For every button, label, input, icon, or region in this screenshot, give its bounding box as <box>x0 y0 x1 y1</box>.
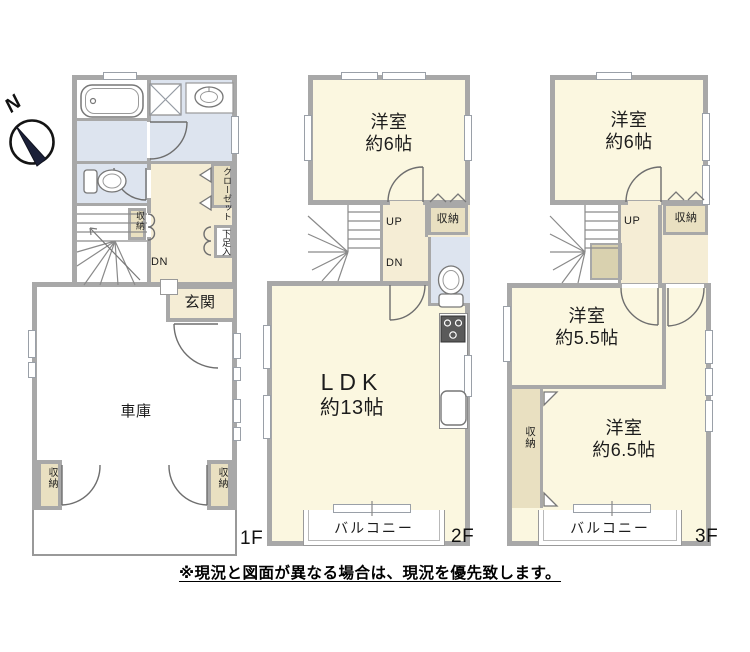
window <box>233 399 241 423</box>
wall-segment <box>77 118 151 121</box>
f3-room-mid-size: 約5.5帖 <box>527 328 647 350</box>
wall-segment <box>147 158 151 170</box>
disclaimer-text: ※現況と図面が異なる場合は、現況を優先致します。 <box>130 565 610 584</box>
wall-segment <box>77 203 151 206</box>
f2-balcony-label: バルコニー <box>314 520 434 537</box>
window <box>705 368 713 396</box>
f2-floor-label: 2F <box>451 525 474 548</box>
driveway-line <box>32 554 237 556</box>
f1-garage-label: 車庫 <box>96 403 176 421</box>
window <box>573 504 651 513</box>
f3-floor-label: 3F <box>695 525 718 548</box>
f1-washroom <box>77 120 147 163</box>
window <box>263 395 271 439</box>
window <box>702 113 710 161</box>
f1-dn-label: DN <box>151 256 168 269</box>
window <box>103 72 137 80</box>
window <box>464 115 472 161</box>
wall-segment <box>425 281 430 285</box>
f3-room-top-name: 洋室 <box>569 110 689 132</box>
f2-ldk-name: LDK <box>282 368 422 396</box>
wall-segment <box>425 205 428 237</box>
wall-segment <box>77 161 233 164</box>
window <box>333 504 411 513</box>
wall-segment <box>658 205 662 285</box>
window <box>705 400 713 432</box>
window <box>341 72 378 80</box>
window <box>382 72 426 80</box>
f1-powder-room <box>150 80 232 163</box>
f2-ldk-size: 約13帖 <box>282 396 422 420</box>
driveway-line <box>32 510 34 556</box>
f3-room-bottom-name: 洋室 <box>564 418 684 440</box>
window <box>464 355 472 397</box>
wall-segment <box>540 389 543 508</box>
window <box>233 427 241 441</box>
floorplan-canvas: N 収納 クローゼット 下足入 DN 玄関 車庫 収納 収納 1F 洋室 約6帖… <box>0 0 750 652</box>
window <box>596 72 632 80</box>
wall-segment <box>267 281 390 285</box>
f1-entrance-label: 玄関 <box>169 294 231 312</box>
f2-up-label: UP <box>386 216 402 229</box>
window <box>28 362 36 378</box>
f1-toilet-room <box>77 163 147 205</box>
wall-segment <box>147 80 151 122</box>
f2-toilet-room <box>428 237 470 306</box>
f3-room-mid-name: 洋室 <box>527 306 647 328</box>
window <box>233 333 241 359</box>
window <box>263 325 271 369</box>
door-opening <box>666 284 704 288</box>
f3-room-top-size: 約6帖 <box>569 132 689 154</box>
window <box>503 306 511 362</box>
wall-segment <box>380 205 383 281</box>
window <box>702 165 710 205</box>
f1-garage-storage-right-label: 収納 <box>212 467 227 503</box>
wall-segment <box>661 201 708 205</box>
wall-segment <box>512 385 666 389</box>
wall-segment <box>550 201 628 205</box>
driveway-line <box>235 510 237 556</box>
f3-up-label: UP <box>624 215 640 228</box>
f3-storage-left-label: 収納 <box>519 426 535 470</box>
window <box>28 330 36 358</box>
window <box>231 116 239 154</box>
wall-segment <box>423 201 470 205</box>
f1-shoe-cabinet-label: 下足入 <box>219 229 231 257</box>
f1-small-storage-label: 収納 <box>131 211 145 239</box>
f1-floor-label: 1F <box>240 527 263 550</box>
wall-segment <box>308 201 390 205</box>
f3-storage-top-label: 収納 <box>666 212 706 225</box>
f2-room-top-name: 洋室 <box>329 112 449 134</box>
window <box>304 115 312 161</box>
f1-closet-label: クローゼット <box>210 167 232 207</box>
wall-segment <box>618 205 621 283</box>
f2-dn-label: DN <box>386 257 403 270</box>
window <box>233 367 241 381</box>
f2-room-top-size: 約6帖 <box>329 134 449 156</box>
wall-segment <box>662 288 666 387</box>
door-opening <box>622 284 658 288</box>
window <box>705 330 713 364</box>
f2-storage-label: 収納 <box>429 213 467 226</box>
f2-stairwell <box>308 205 380 281</box>
f3-balcony-label: バルコニー <box>550 520 670 537</box>
f1-garage-storage-left-label: 収納 <box>42 467 57 503</box>
f3-room-bottom-size: 約6.5帖 <box>564 440 684 462</box>
f1-entrance-step <box>160 279 178 295</box>
